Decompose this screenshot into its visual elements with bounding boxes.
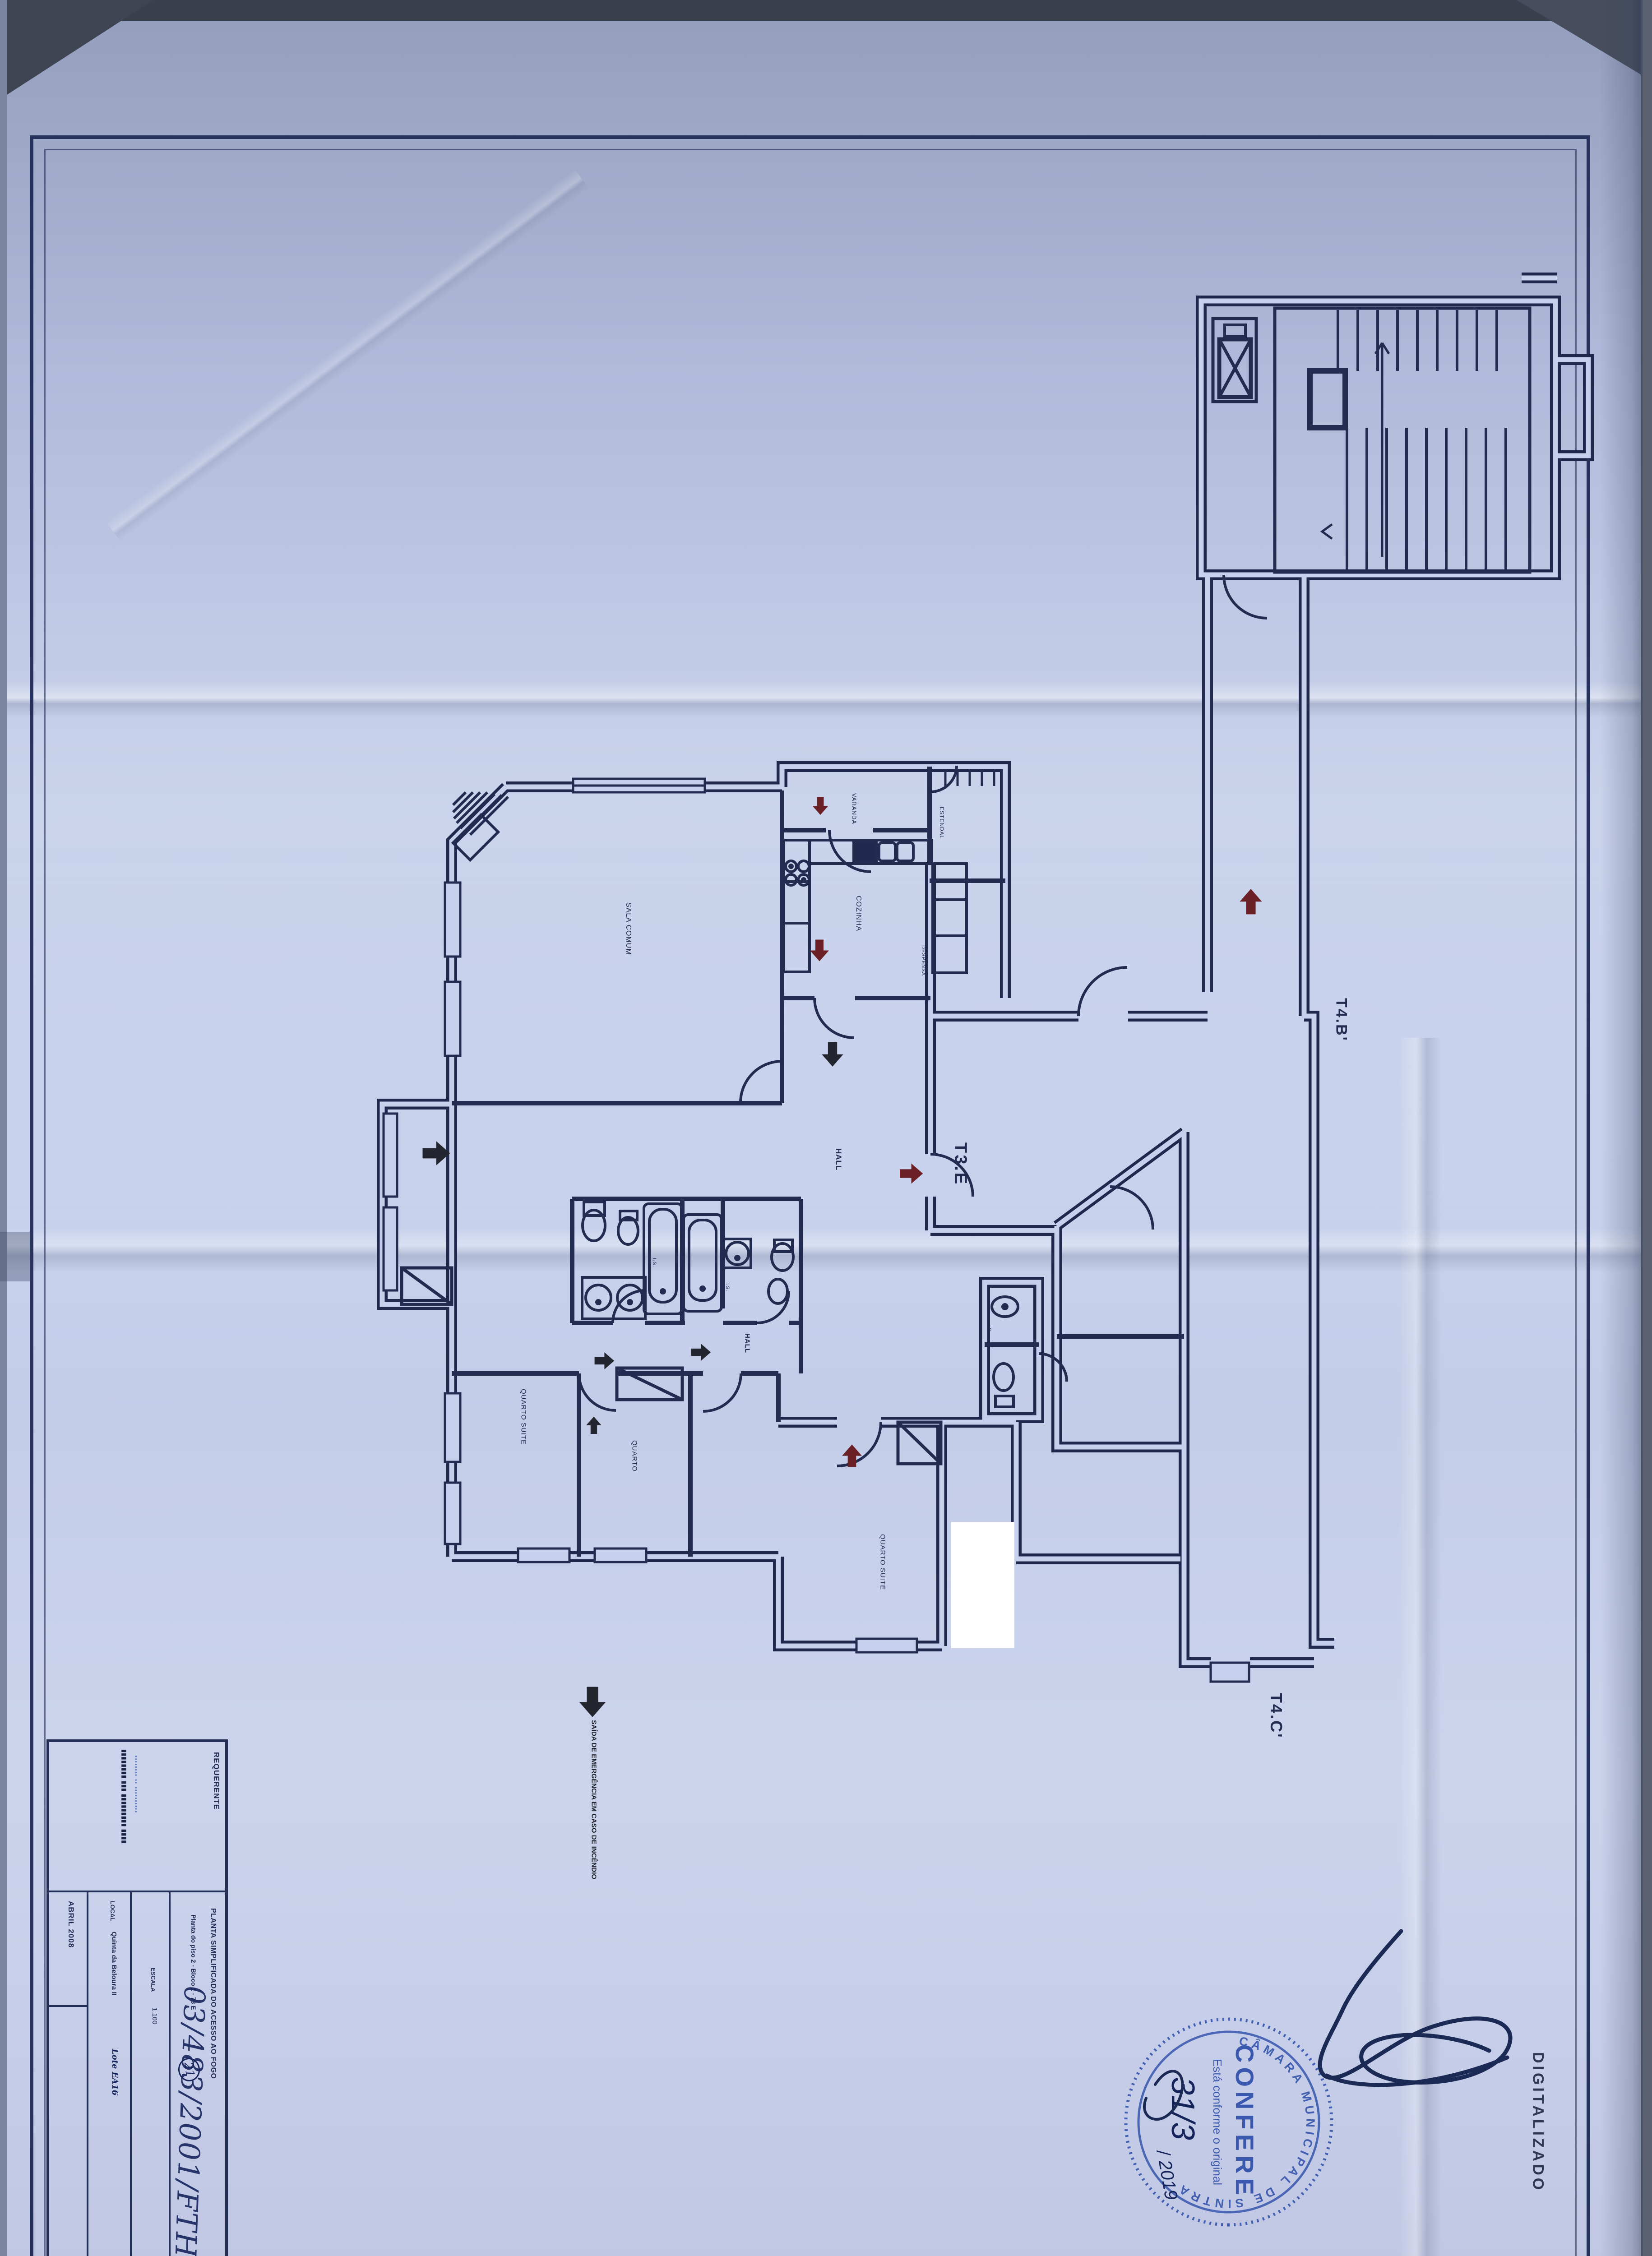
signature (0, 0, 1652, 2256)
digitalizado-watermark: DIGITALIZADO (1529, 2052, 1547, 2192)
scanned-floor-plan-photo: { "photo": { "watermark": "DIGITALIZADO"… (0, 0, 1652, 2256)
